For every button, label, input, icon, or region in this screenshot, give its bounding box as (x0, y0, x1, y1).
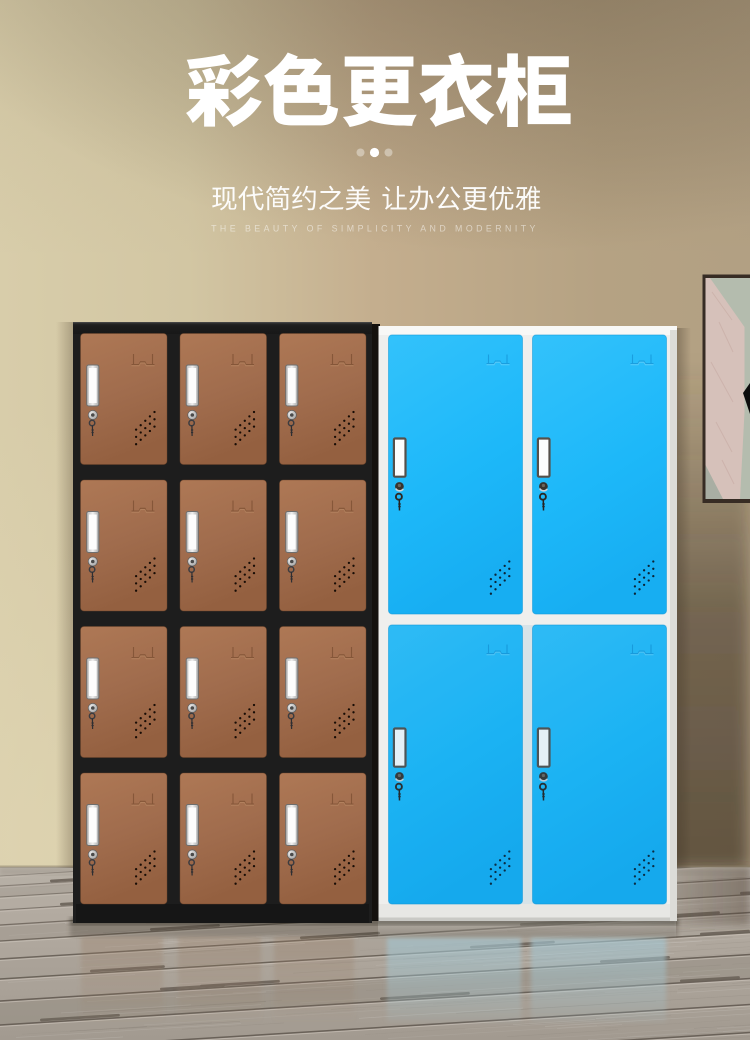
svg-text:THE BEAUTY OF SIMPLICITY AND M: THE BEAUTY OF SIMPLICITY AND MODERNITY (211, 224, 539, 234)
